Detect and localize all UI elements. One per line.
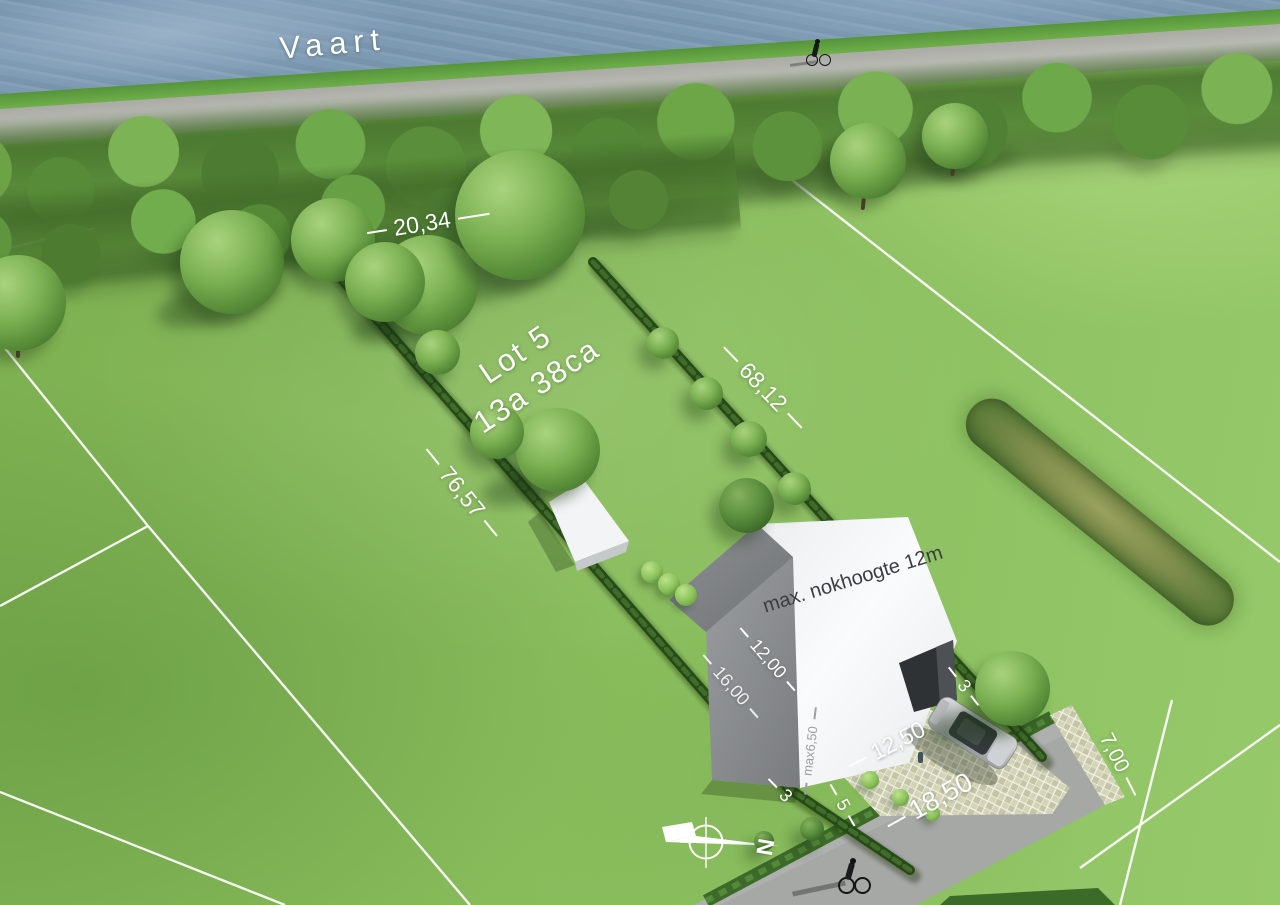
- tree: [800, 817, 824, 841]
- dimension-tick: [724, 346, 739, 362]
- bush: [861, 771, 879, 789]
- dimension-tick: [813, 707, 816, 719]
- dimension-tick: [971, 695, 980, 706]
- pedestrian-head: [919, 748, 923, 752]
- cyclist-head: [815, 39, 820, 44]
- dimension-tick: [367, 229, 387, 234]
- tree: [731, 421, 767, 457]
- cyclist-head: [850, 858, 856, 864]
- tree: [415, 330, 460, 375]
- site-plan-render: Vaart 20,34 Lot 5 13a 38ca 68,12 76,57 m…: [0, 0, 1280, 905]
- bike-wheel: [854, 877, 871, 894]
- tree: [719, 478, 774, 533]
- boundary-line: [1120, 700, 1172, 905]
- boundary-line: [0, 526, 148, 606]
- road-verge-lower: [940, 888, 1115, 905]
- bike-wheel: [819, 54, 831, 66]
- bush: [675, 584, 697, 606]
- boundary-line: [792, 180, 1280, 562]
- dimension-tick: [426, 448, 440, 465]
- dimension-tick: [887, 815, 905, 826]
- tree: [778, 472, 811, 505]
- tree: [516, 408, 600, 492]
- tree: [922, 103, 988, 169]
- tree: [690, 377, 723, 410]
- dimension-tick: [484, 519, 498, 536]
- tree: [830, 123, 906, 199]
- dimension-tick: [848, 756, 867, 767]
- dimension-tick: [787, 412, 802, 428]
- boundary-line: [148, 526, 470, 905]
- dimension-tick: [457, 212, 489, 219]
- tree: [345, 242, 425, 322]
- dimension-tick: [1125, 777, 1136, 796]
- dimension-tick: [830, 784, 838, 795]
- dimension-tick: [703, 654, 712, 664]
- dimension-tick: [768, 778, 778, 788]
- tree: [975, 651, 1050, 726]
- dimension-tick: [787, 681, 796, 691]
- boundary-line: [0, 342, 148, 526]
- boundary-line: [0, 792, 285, 905]
- pedestrian-body: [918, 752, 923, 763]
- dimension-tick: [848, 815, 856, 826]
- dimension-tick: [948, 666, 957, 677]
- tree: [180, 210, 284, 314]
- dimension-tick: [750, 708, 759, 718]
- tree: [647, 327, 679, 359]
- dimension-tick: [804, 783, 807, 795]
- dimension-tick: [740, 627, 749, 637]
